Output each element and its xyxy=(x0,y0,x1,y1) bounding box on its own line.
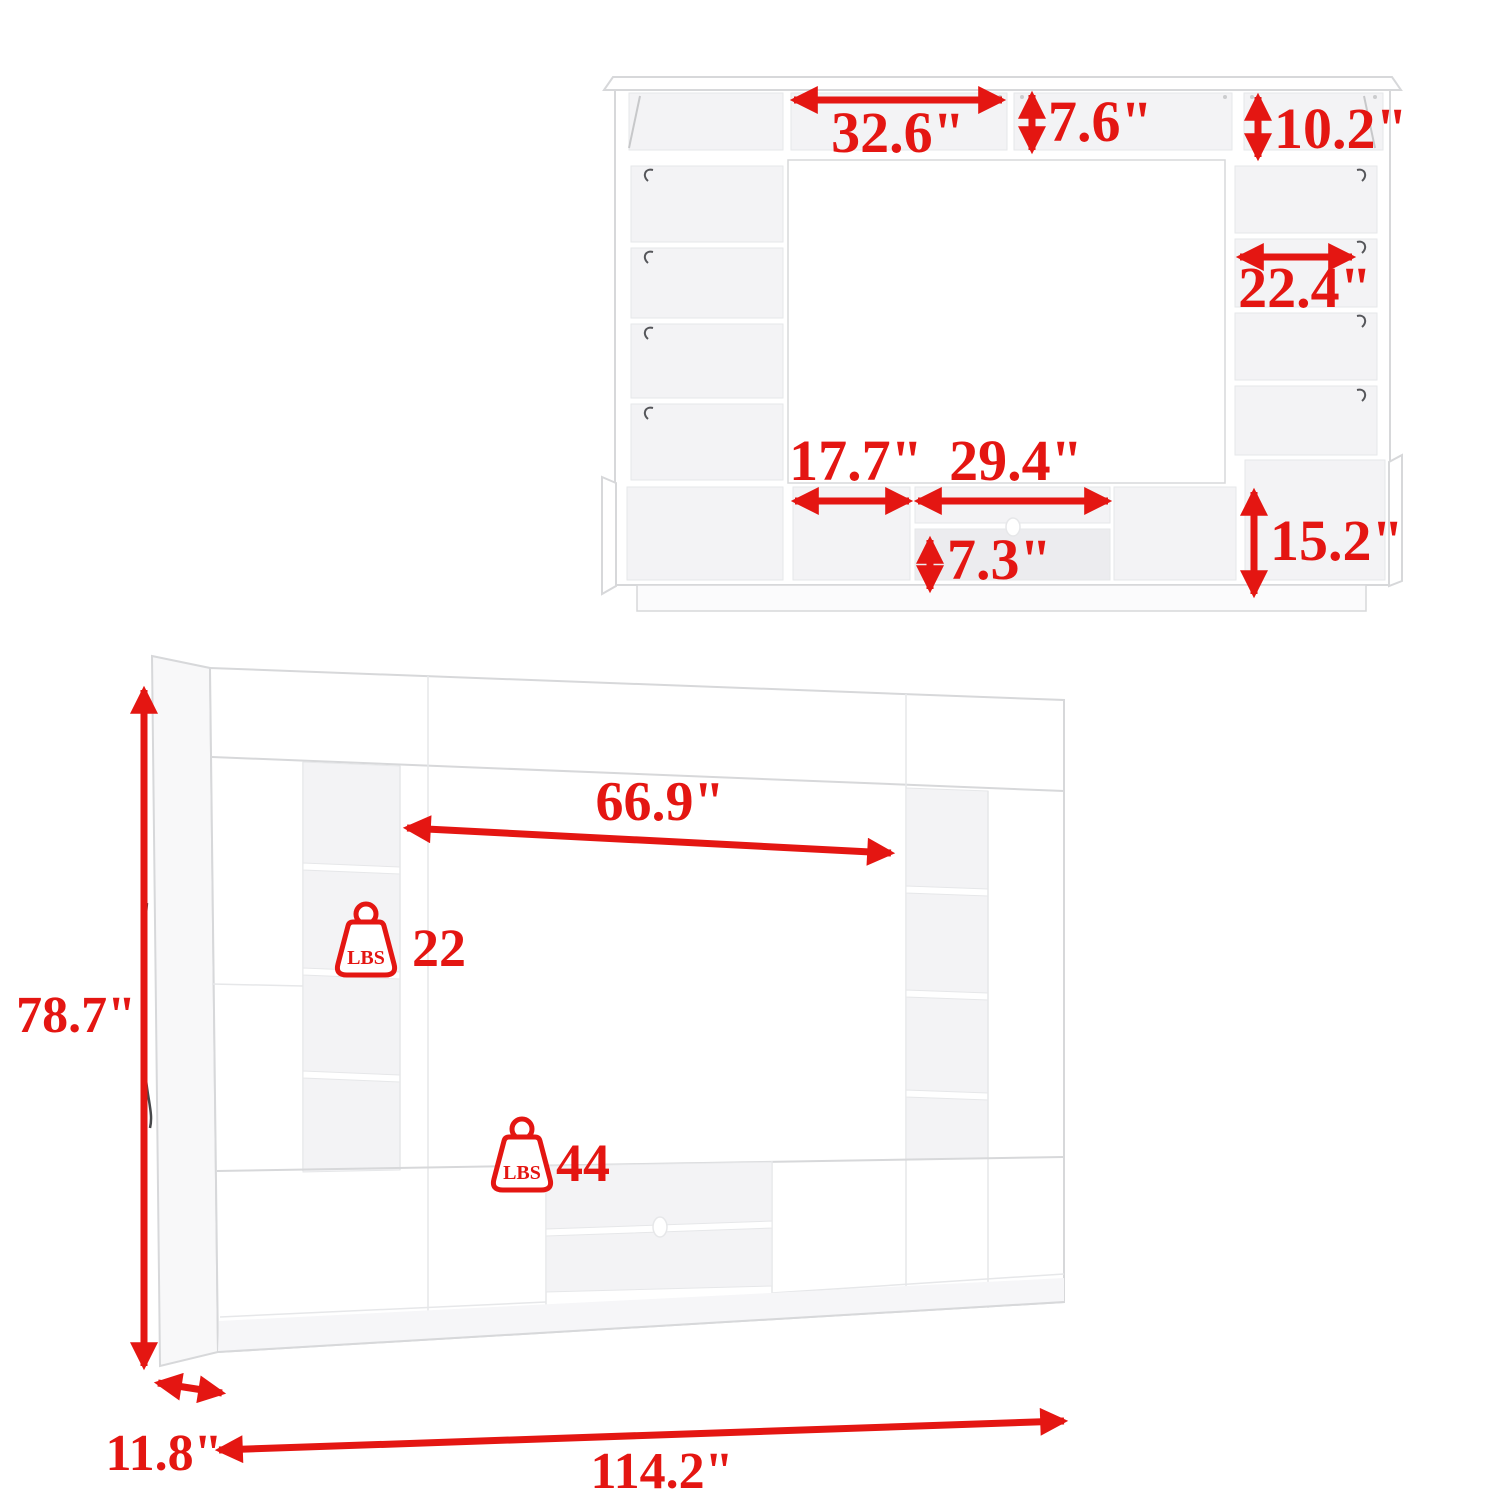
left-side-panel xyxy=(152,656,218,1366)
shelf-cubby xyxy=(631,248,783,318)
cornice-top-board xyxy=(604,77,1401,90)
dim-top-cabinet-height-label: 10.2" xyxy=(1274,96,1408,161)
front-top-left-cabinet-interior xyxy=(629,93,783,150)
dim-tv-opening-width-label: 66.9" xyxy=(595,771,724,833)
console-right-cubby xyxy=(1114,487,1236,580)
dim-tv-console-width-label: 29.4" xyxy=(949,428,1083,493)
dim-side-shelf-width-label: 22.4" xyxy=(1238,255,1372,320)
dim-tv-shelf-height-label: 7.3" xyxy=(947,527,1052,592)
weight-lbs-unit: LBS xyxy=(347,947,385,969)
dim-overall-height-label: 78.7" xyxy=(16,987,136,1044)
shelf-cubby xyxy=(1235,166,1377,233)
dim-depth-arrow xyxy=(158,1383,222,1393)
open-door-left xyxy=(602,477,616,594)
dim-depth-label: 11.8" xyxy=(106,1425,223,1482)
dim-left-cubby-width-label: 17.7" xyxy=(789,428,923,493)
shelf-weight-value: 22 xyxy=(412,918,466,978)
diagram-svg: 32.6" 7.6" 10.2" 22.4" 17.7" 29.4" 7.3" … xyxy=(0,0,1500,1500)
shelf-cubby xyxy=(631,324,783,398)
dim-overall-width-label: 114.2" xyxy=(591,1443,734,1500)
shelf-cubby xyxy=(1235,313,1377,380)
weight-lbs-unit: LBS xyxy=(503,1162,541,1184)
product-dimension-diagram: 32.6" 7.6" 10.2" 22.4" 17.7" 29.4" 7.3" … xyxy=(0,0,1500,1500)
right-shelf-column xyxy=(906,788,988,1160)
dim-bridge-height-label: 7.6" xyxy=(1048,89,1153,154)
dim-bottom-cabinet-height-label: 15.2" xyxy=(1270,508,1404,573)
shelf-cubby xyxy=(1235,386,1377,455)
tv-board-weight-value: 44 xyxy=(556,1133,610,1193)
bottom-left-cabinet-interior xyxy=(627,487,783,580)
dim-bridge-width-label: 32.6" xyxy=(831,100,965,165)
cable-hole xyxy=(653,1217,667,1237)
front-view: 32.6" 7.6" 10.2" 22.4" 17.7" 29.4" 7.3" … xyxy=(602,77,1408,611)
shelf-cubby xyxy=(631,166,783,242)
shelf-cubby xyxy=(631,404,783,480)
perspective-view: 66.9" 78.7" 11.8" 114.2" LBS 22 LBS 44 xyxy=(16,656,1064,1500)
